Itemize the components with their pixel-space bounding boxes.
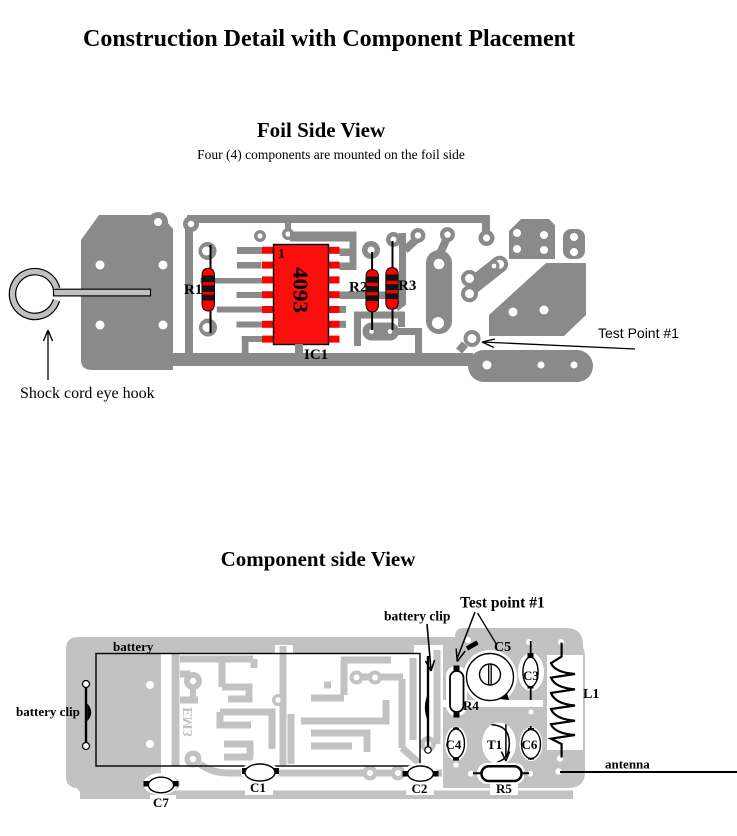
svg-text:T1: T1 [487,737,502,752]
svg-text:battery clip: battery clip [384,609,450,624]
svg-text:R2: R2 [349,280,367,296]
svg-text:antenna: antenna [605,757,650,772]
svg-text:IC1: IC1 [304,347,328,363]
svg-text:Construction Detail with Compo: Construction Detail with Component Place… [83,26,575,52]
svg-text:R5: R5 [496,781,512,796]
svg-text:R1: R1 [184,282,202,298]
svg-text:Test Point #1: Test Point #1 [598,325,679,341]
svg-text:C6: C6 [522,737,538,752]
svg-text:4093: 4093 [289,267,313,313]
svg-text:EM3: EM3 [181,707,196,737]
svg-text:L1: L1 [583,687,599,702]
svg-text:R3: R3 [398,278,416,294]
svg-text:battery: battery [113,639,154,654]
svg-text:Shock cord eye hook: Shock cord eye hook [20,385,155,402]
svg-text:Test point #1: Test point #1 [460,595,545,612]
svg-text:C1: C1 [250,780,266,795]
svg-text:R4: R4 [463,698,479,713]
svg-text:C4: C4 [446,737,462,752]
svg-text:C7: C7 [153,795,169,810]
svg-text:1: 1 [278,247,285,262]
svg-text:C3: C3 [523,668,539,683]
svg-text:C5: C5 [494,640,511,655]
svg-text:Four (4) components are mounte: Four (4) components are mounted on the f… [197,147,465,162]
svg-text:battery clip: battery clip [16,704,80,719]
svg-text:Foil Side View: Foil Side View [257,118,386,142]
svg-text:Component side View: Component side View [221,547,417,571]
svg-text:C2: C2 [412,781,428,796]
